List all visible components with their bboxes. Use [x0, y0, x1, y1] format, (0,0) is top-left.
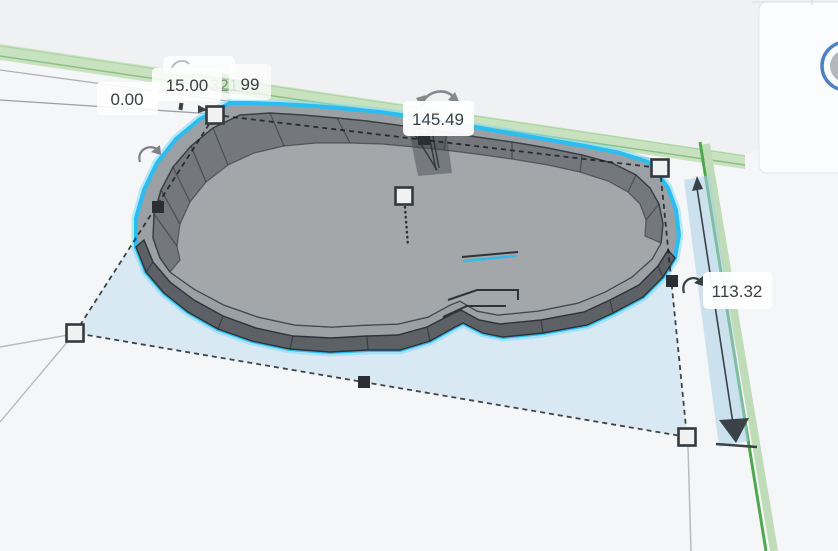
- height-handle-top[interactable]: [396, 188, 413, 205]
- svg-text:15.00: 15.00: [166, 76, 209, 95]
- corner-handle-back-left[interactable]: [207, 107, 224, 124]
- svg-text:99: 99: [241, 75, 260, 94]
- side-panel: [752, 0, 838, 173]
- corner-handle-front-right[interactable]: [679, 429, 696, 446]
- corner-handle-front-left[interactable]: [67, 325, 84, 342]
- label-partial-value[interactable]: 99: [229, 64, 271, 100]
- edge-handle-front[interactable]: [358, 376, 370, 388]
- label-width[interactable]: 113.32: [703, 272, 772, 309]
- corner-handle-back-right[interactable]: [652, 160, 669, 177]
- edge-handle-right[interactable]: [666, 275, 678, 287]
- svg-text:113.32: 113.32: [712, 282, 763, 301]
- label-length[interactable]: 145.49: [403, 101, 474, 136]
- svg-text:0.00: 0.00: [110, 90, 143, 109]
- viewport-3d[interactable]: 321 0.00 15.00 99 145.49 113.32: [0, 0, 838, 551]
- label-z-position[interactable]: 0.00: [97, 82, 158, 115]
- label-height[interactable]: 15.00: [152, 68, 222, 101]
- svg-text:145.49: 145.49: [412, 110, 464, 129]
- edge-handle-left[interactable]: [152, 201, 164, 213]
